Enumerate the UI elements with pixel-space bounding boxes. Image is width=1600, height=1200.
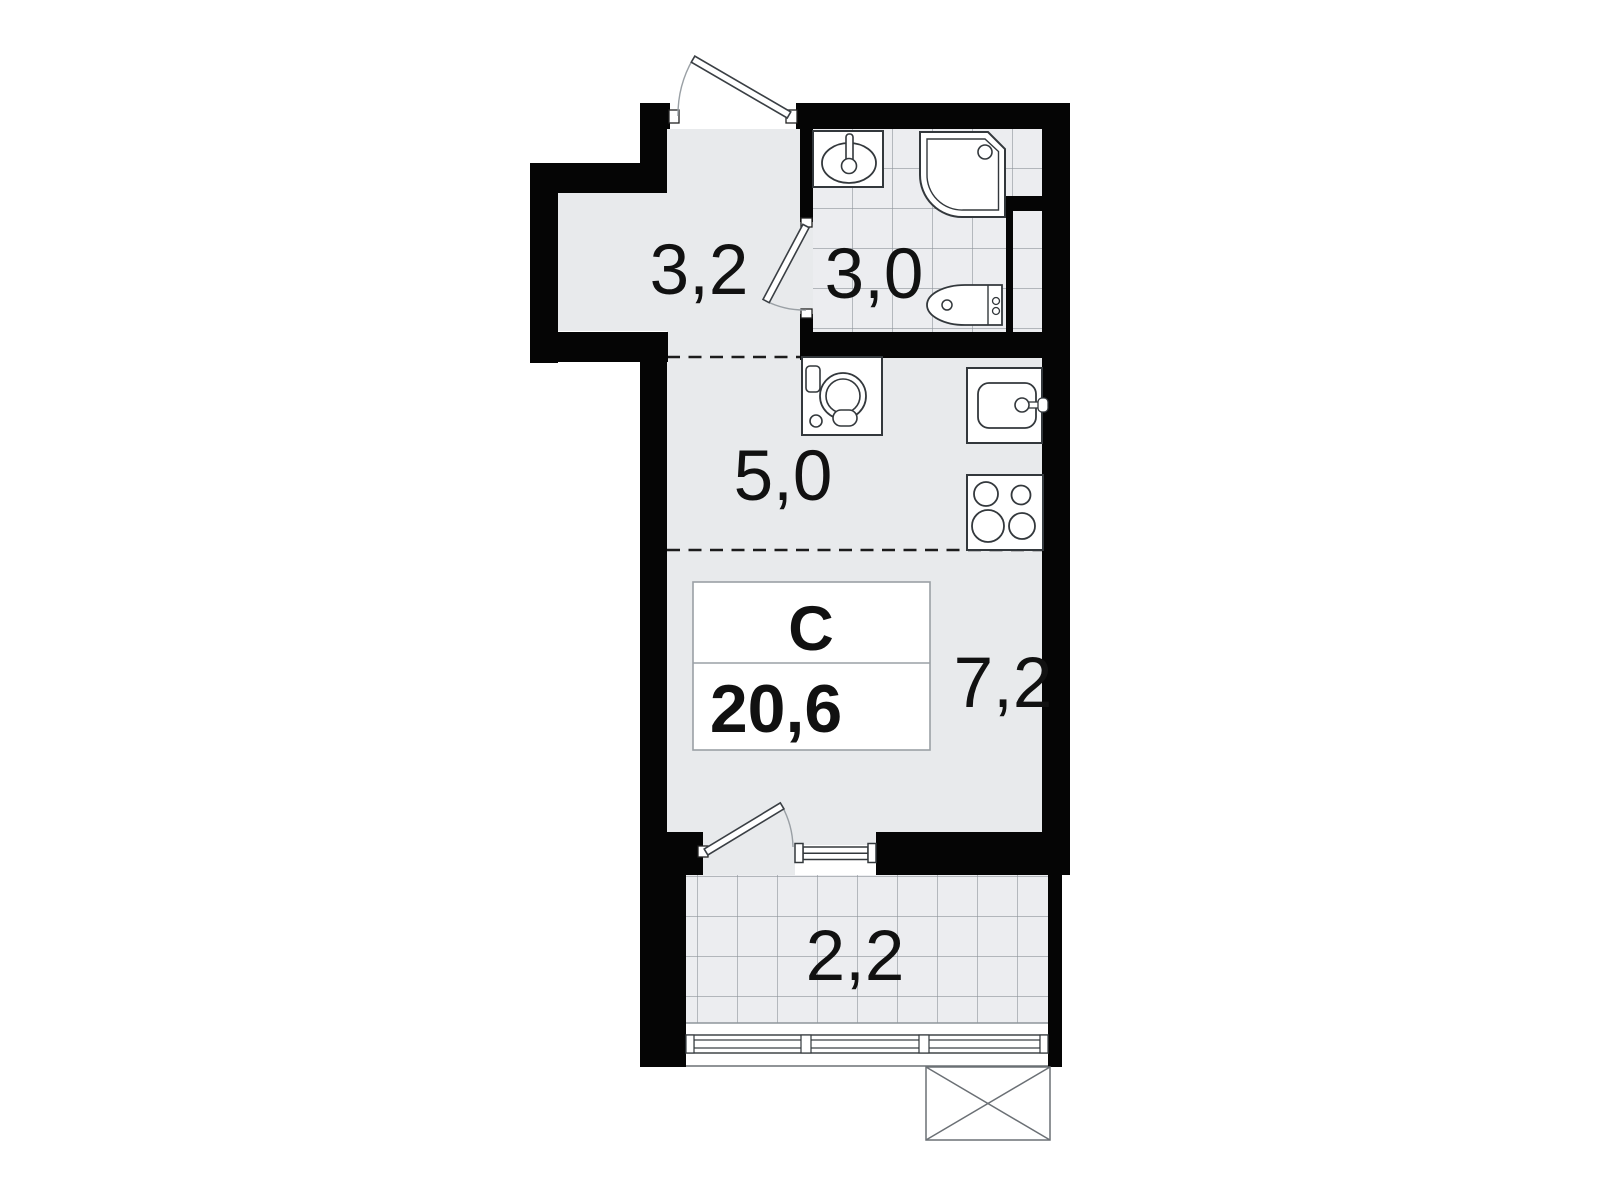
glazing-mullion-2 <box>919 1035 929 1053</box>
wall-bottom-right <box>876 832 1070 875</box>
living-room-window <box>795 844 876 863</box>
wall-bathroom-bottom <box>800 332 1070 358</box>
toilet-button-2 <box>993 308 1000 315</box>
unit-info-box: С 20,6 <box>693 582 930 750</box>
bathroom-area-label: 3,0 <box>825 235 924 314</box>
toilet-bowl <box>927 285 1002 325</box>
bathroom-sink-icon <box>813 131 883 187</box>
balcony-area-label: 2,2 <box>806 917 905 996</box>
toilet-button-1 <box>993 298 1000 305</box>
sink-drain <box>842 159 857 174</box>
cooktop-icon <box>967 475 1043 550</box>
balcony-door-threshold <box>703 832 795 875</box>
wall-shaft-stub <box>1006 196 1042 211</box>
toilet-icon <box>927 285 1002 325</box>
wall-balcony-right <box>1048 875 1062 1067</box>
burner-bottom-right <box>1009 513 1035 539</box>
kitchen-area-label: 5,0 <box>734 437 833 516</box>
burner-top-right <box>1012 486 1031 505</box>
washer-knob <box>810 415 822 427</box>
living-area-label: 7,2 <box>954 644 1053 723</box>
glazing-inner <box>694 1040 1040 1048</box>
wall-right-outer <box>1042 103 1070 875</box>
floor-plan-page: С 20,6 3,2 3,0 5,0 7,2 2,2 <box>0 0 1600 1200</box>
wall-bathroom-partition-upper <box>800 129 813 222</box>
wall-left-main <box>640 332 667 875</box>
glazing-cap-left <box>686 1035 694 1053</box>
wall-top-right-segment <box>796 103 1070 129</box>
window-cap-right <box>868 844 876 863</box>
wall-balcony-left <box>640 875 686 1067</box>
ac-unit-platform <box>926 1067 1050 1140</box>
window-sill-strip <box>795 832 876 845</box>
glazing-cap-right <box>1040 1035 1048 1053</box>
kitchen-tap-knob <box>1038 398 1048 412</box>
hallway-area-label: 3,2 <box>650 231 749 310</box>
washer-drawer <box>806 366 820 392</box>
washer-handle <box>833 410 857 426</box>
unit-type-label: С <box>788 594 834 664</box>
washing-machine-icon <box>802 357 882 435</box>
floor-plan-svg: С 20,6 3,2 3,0 5,0 7,2 2,2 <box>0 0 1600 1200</box>
burner-bottom-left <box>972 510 1004 542</box>
kitchen-sink-icon <box>967 368 1048 443</box>
window-cap-left <box>795 844 803 863</box>
kitchen-tap-base <box>1015 398 1029 412</box>
wall-shaft-side <box>1006 211 1013 332</box>
burner-top-left <box>974 482 998 506</box>
unit-total-area: 20,6 <box>710 671 842 747</box>
shower-cabin-icon <box>920 132 1005 217</box>
glazing-mullion-1 <box>801 1035 811 1053</box>
shower-drain <box>978 145 992 159</box>
toilet-drain <box>942 300 952 310</box>
washer-door-inner <box>826 379 860 413</box>
